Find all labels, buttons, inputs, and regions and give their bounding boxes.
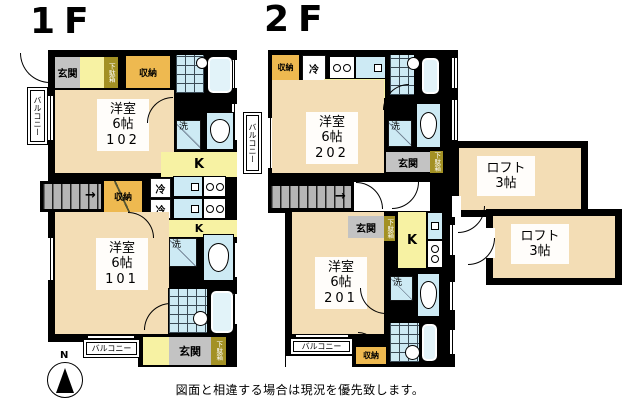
room-201-size: 6帖 (330, 275, 351, 290)
compass-needle-icon (56, 368, 74, 393)
stove-burners (203, 176, 226, 197)
counter-sink (427, 212, 443, 240)
balcony-101: バルコニー (83, 339, 140, 358)
room-202-label: 洋室 6帖 202 (306, 112, 358, 164)
kitchen-counter-202 (329, 56, 386, 79)
entrance-101: 玄関 (169, 337, 211, 365)
sink-201 (405, 345, 420, 360)
washer-202: 洗 (388, 120, 412, 147)
entrance-201: 玄関 (348, 216, 384, 238)
fridge-202: 冷 (302, 55, 326, 82)
fridge-102: 冷 (150, 178, 171, 198)
shoe-cabinet-202: 下駄箱 (430, 151, 443, 173)
stove-burners (203, 198, 226, 219)
room-102-type: 洋室 (110, 102, 136, 117)
storage-101-hall: 収納 (104, 181, 142, 212)
bathtub-101 (210, 290, 234, 334)
kitchen-201: K (398, 212, 426, 268)
toilet-102 (206, 112, 234, 150)
shoe-cabinet-201: 下駄箱 (384, 216, 395, 241)
window (48, 238, 53, 280)
loft-upper-type: ロフト (486, 161, 525, 176)
room-202-type: 洋室 (319, 115, 345, 130)
kitchen-counter-102 (173, 176, 226, 197)
room-101-label: 洋室 6帖 101 (96, 238, 148, 290)
storage-102: 収納 (126, 56, 170, 88)
counter-sink (355, 56, 386, 79)
balcony-202: バルコニー (243, 112, 262, 174)
loft-upper-label: ロフト 3帖 (477, 156, 535, 196)
toilet-bowl (420, 281, 436, 308)
balcony-102: バルコニー (27, 87, 48, 145)
window (450, 225, 455, 255)
loft-lower-label: ロフト 3帖 (511, 224, 569, 264)
washer-102: 洗 (176, 120, 201, 150)
toilet-bowl (420, 112, 438, 140)
floor-2-title: 2F (264, 2, 332, 38)
counter-sink (173, 198, 203, 219)
room-101-number: 101 (105, 272, 139, 287)
shoe-cabinet-102: 下駄箱 (104, 57, 118, 88)
floor-1-title: 1F (30, 4, 98, 40)
floor-plan: 1F 2F 玄関 下駄箱 収納 洋室 6帖 102 洗 K 冷 冷 K 収納 (0, 0, 640, 405)
window (452, 58, 457, 88)
stairs-direction-arrow-icon (335, 190, 346, 203)
toilet-bowl (208, 243, 230, 272)
window (450, 282, 455, 310)
stove-burners (427, 240, 443, 268)
room-202-number: 202 (315, 146, 349, 161)
bathtub-201 (421, 323, 438, 362)
stove-burners (329, 56, 355, 79)
storage-202: 収納 (272, 55, 299, 80)
sink-202 (407, 57, 420, 70)
window (452, 100, 457, 140)
bathtub-102 (207, 56, 233, 94)
bathtub-202 (421, 57, 440, 95)
loft-lower-size: 3帖 (529, 244, 550, 259)
room-201-number: 201 (324, 291, 358, 306)
kitchen-counter-101 (173, 198, 226, 219)
door-swing-arc (20, 53, 50, 83)
entrance-floor-102 (80, 57, 104, 88)
shoe-cabinet-101: 下駄箱 (211, 337, 226, 365)
toilet-201 (417, 273, 440, 317)
room-101-size: 6帖 (111, 256, 132, 271)
sink-101 (193, 311, 208, 326)
toilet-101 (203, 234, 234, 281)
entrance-202: 玄関 (386, 152, 430, 172)
disclaimer-text: 図面と相違する場合は現況を優先致します。 (160, 381, 440, 398)
entrance-102: 玄関 (55, 57, 80, 88)
balcony-201: バルコニー (290, 338, 353, 355)
door-swing-arc (458, 206, 485, 233)
room-101-type: 洋室 (109, 241, 135, 256)
room-201-label: 洋室 6帖 201 (315, 257, 367, 309)
loft-lower-type: ロフト (520, 229, 559, 244)
toilet-bowl (210, 119, 230, 143)
entrance-floor-101 (143, 337, 169, 365)
counter-sink (173, 176, 203, 197)
room-201-type: 洋室 (328, 260, 354, 275)
compass-north-label: N (60, 350, 68, 361)
compass-icon (47, 362, 83, 398)
loft-upper-size: 3帖 (495, 176, 516, 191)
toilet-202 (416, 103, 441, 148)
washer-201: 洗 (390, 276, 413, 301)
room-102-size: 6帖 (112, 117, 133, 132)
washer-101: 洗 (169, 238, 197, 267)
room-202-size: 6帖 (321, 130, 342, 145)
stairs-direction-arrow-icon (85, 189, 96, 202)
kitchen-fixtures-201 (427, 212, 443, 268)
window (450, 330, 455, 354)
window (48, 96, 53, 140)
exterior-gap (286, 356, 352, 367)
storage-201: 収納 (356, 347, 386, 364)
kitchen-102: K (161, 152, 237, 177)
room-102-label: 洋室 6帖 102 (97, 99, 149, 151)
room-102-number: 102 (106, 133, 140, 148)
